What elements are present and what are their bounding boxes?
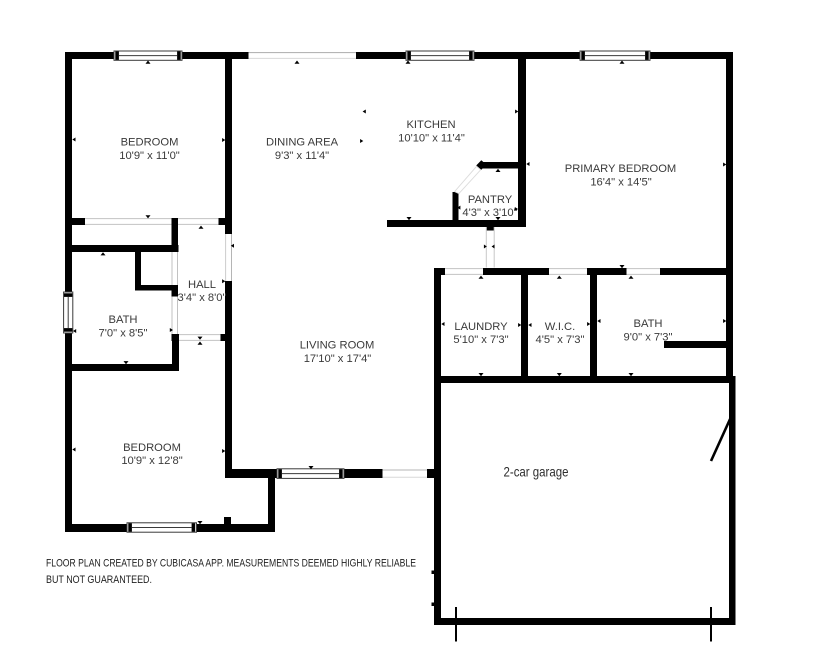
svg-text:5'10" x 7'3": 5'10" x 7'3": [453, 334, 508, 346]
svg-text:BUT NOT GUARANTEED.: BUT NOT GUARANTEED.: [46, 574, 152, 586]
svg-text:4'5" x 7'3": 4'5" x 7'3": [536, 334, 585, 346]
svg-text:2-car garage: 2-car garage: [504, 464, 569, 480]
svg-text:DINING AREA: DINING AREA: [266, 137, 339, 149]
svg-text:LAUNDRY: LAUNDRY: [454, 321, 508, 333]
svg-text:W.I.C.: W.I.C.: [545, 321, 575, 333]
svg-text:17'10" x 17'4": 17'10" x 17'4": [304, 353, 372, 365]
svg-text:7'0" x 8'5": 7'0" x 8'5": [99, 327, 148, 339]
svg-text:10'9" x 12'8": 10'9" x 12'8": [121, 455, 182, 467]
svg-text:LIVING ROOM: LIVING ROOM: [300, 340, 375, 352]
svg-text:BEDROOM: BEDROOM: [121, 137, 179, 149]
svg-text:16'4" x 14'5": 16'4" x 14'5": [590, 177, 651, 189]
svg-text:3'4" x 8'0": 3'4" x 8'0": [178, 292, 227, 304]
svg-text:PRIMARY BEDROOM: PRIMARY BEDROOM: [565, 163, 676, 175]
svg-text:4'3" x 3'10": 4'3" x 3'10": [462, 207, 517, 219]
svg-text:10'9" x 11'0": 10'9" x 11'0": [119, 150, 180, 162]
svg-text:BATH: BATH: [633, 318, 662, 330]
svg-text:9'0" x 7'3": 9'0" x 7'3": [624, 332, 673, 344]
svg-text:KITCHEN: KITCHEN: [406, 119, 455, 131]
svg-text:BATH: BATH: [108, 314, 137, 326]
svg-text:9'3" x 11'4": 9'3" x 11'4": [275, 150, 329, 162]
svg-text:BEDROOM: BEDROOM: [123, 442, 181, 454]
svg-text:PANTRY: PANTRY: [468, 194, 513, 206]
svg-text:10'10" x 11'4": 10'10" x 11'4": [398, 133, 465, 145]
svg-text:FLOOR PLAN CREATED BY CUBICASA: FLOOR PLAN CREATED BY CUBICASA APP. MEAS…: [46, 558, 416, 570]
svg-text:HALL: HALL: [188, 279, 216, 291]
